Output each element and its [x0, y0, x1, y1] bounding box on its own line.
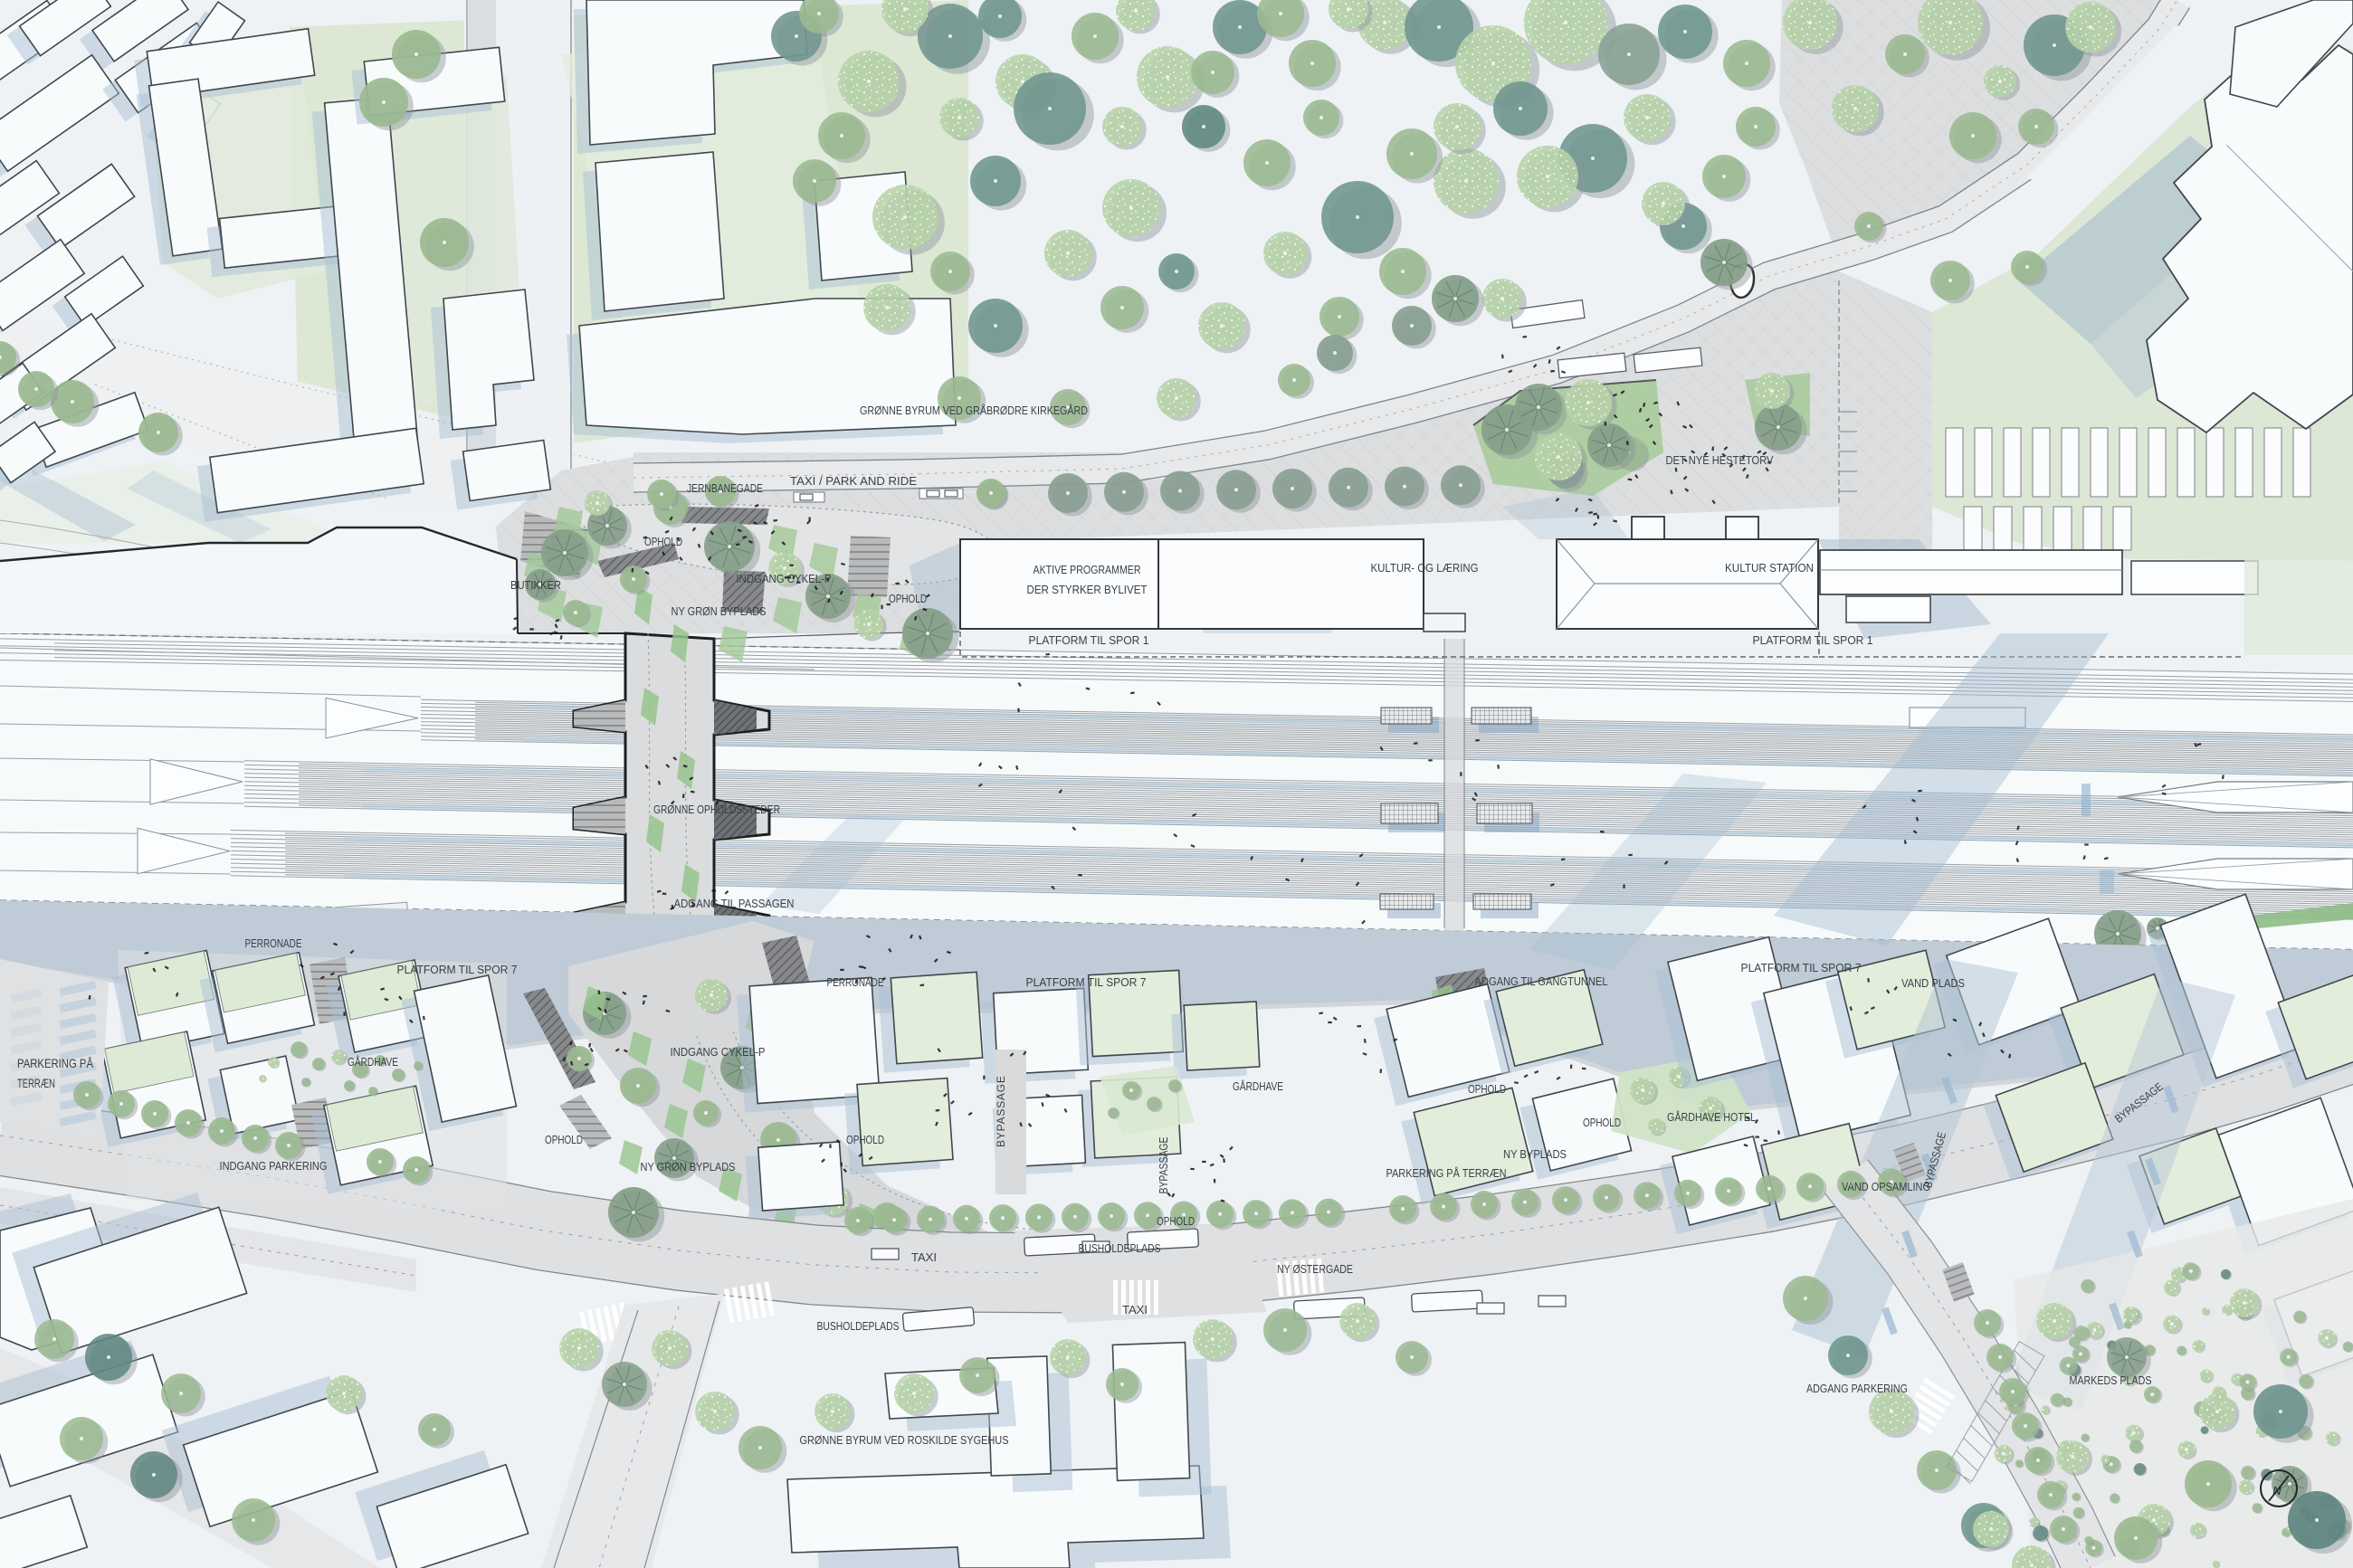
svg-text:PLATFORM TIL SPOR 7: PLATFORM TIL SPOR 7 — [397, 964, 518, 976]
svg-text:GÅRDHAVE: GÅRDHAVE — [348, 1055, 398, 1069]
svg-text:BYPASSAGE: BYPASSAGE — [995, 1075, 1007, 1147]
svg-text:ADGANG TIL GANGTUNNEL: ADGANG TIL GANGTUNNEL — [1475, 975, 1608, 988]
svg-text:TAXI / PARK AND RIDE: TAXI / PARK AND RIDE — [790, 475, 917, 488]
svg-text:ADGANG TIL PASSAGEN: ADGANG TIL PASSAGEN — [674, 898, 795, 910]
svg-text:PERRONADE: PERRONADE — [245, 937, 302, 950]
svg-text:BUSHOLDEPLADS: BUSHOLDEPLADS — [817, 1320, 900, 1333]
svg-text:TAXI: TAXI — [911, 1251, 937, 1264]
svg-text:TERRÆN: TERRÆN — [17, 1076, 55, 1090]
svg-text:NY GRØN BYPLADS: NY GRØN BYPLADS — [672, 605, 767, 618]
svg-text:NY BYPLADS: NY BYPLADS — [1503, 1148, 1567, 1161]
svg-text:GÅRDHAVE HOTEL: GÅRDHAVE HOTEL — [1667, 1110, 1756, 1124]
svg-text:BUTIKKER: BUTIKKER — [510, 579, 561, 592]
svg-text:GRØNNE OPHOLDSSTEDER: GRØNNE OPHOLDSSTEDER — [653, 803, 780, 816]
svg-text:N: N — [2272, 1484, 2282, 1497]
svg-text:PLATFORM TIL SPOR 1: PLATFORM TIL SPOR 1 — [1029, 634, 1149, 647]
svg-text:TAXI: TAXI — [1122, 1304, 1148, 1316]
svg-text:OPHOLD: OPHOLD — [1583, 1117, 1621, 1129]
svg-text:JERNBANEGADE: JERNBANEGADE — [687, 482, 763, 495]
svg-text:BYPASSAGE: BYPASSAGE — [1157, 1137, 1170, 1194]
svg-text:VAND OPSAMLING: VAND OPSAMLING — [1842, 1181, 1930, 1193]
svg-text:KULTUR STATION: KULTUR STATION — [1725, 562, 1814, 575]
svg-text:PERRONADE: PERRONADE — [827, 976, 884, 989]
svg-text:GÅRDHAVE: GÅRDHAVE — [1233, 1079, 1283, 1093]
svg-text:PLATFORM TIL SPOR 7: PLATFORM TIL SPOR 7 — [1026, 976, 1147, 989]
svg-text:OPHOLD: OPHOLD — [545, 1134, 583, 1146]
svg-text:GRØNNE BYRUM VED ROSKILDE SYGE: GRØNNE BYRUM VED ROSKILDE SYGEHUS — [800, 1434, 1009, 1447]
svg-text:OPHOLD: OPHOLD — [644, 536, 682, 548]
svg-text:OPHOLD: OPHOLD — [1157, 1215, 1195, 1228]
svg-text:INDGANG CYKEL-P: INDGANG CYKEL-P — [737, 573, 832, 585]
svg-text:DER STYRKER BYLIVET: DER STYRKER BYLIVET — [1027, 584, 1148, 596]
svg-text:PARKERING PÅ: PARKERING PÅ — [17, 1056, 94, 1070]
svg-text:INDGANG CYKEL-P: INDGANG CYKEL-P — [671, 1046, 766, 1059]
svg-text:NY GRØN BYPLADS: NY GRØN BYPLADS — [641, 1161, 736, 1174]
svg-text:OPHOLD: OPHOLD — [889, 593, 927, 605]
svg-text:BUSHOLDEPLADS: BUSHOLDEPLADS — [1079, 1242, 1161, 1255]
svg-text:PLATFORM TIL SPOR 1: PLATFORM TIL SPOR 1 — [1753, 634, 1873, 647]
svg-text:NY ØSTERGADE: NY ØSTERGADE — [1277, 1263, 1353, 1276]
svg-text:PARKERING PÅ TERRÆN: PARKERING PÅ TERRÆN — [1386, 1166, 1507, 1180]
svg-text:MARKEDS PLADS: MARKEDS PLADS — [2070, 1374, 2152, 1387]
svg-text:INDGANG PARKERING: INDGANG PARKERING — [220, 1160, 328, 1173]
svg-text:VAND PLADS: VAND PLADS — [1901, 977, 1965, 990]
svg-text:ADGANG PARKERING: ADGANG PARKERING — [1806, 1383, 1908, 1395]
svg-text:OPHOLD: OPHOLD — [1468, 1083, 1506, 1096]
svg-text:GRØNNE BYRUM VED GRÅBRØDRE KIR: GRØNNE BYRUM VED GRÅBRØDRE KIRKEGÅRD — [860, 404, 1088, 417]
svg-text:AKTIVE PROGRAMMER: AKTIVE PROGRAMMER — [1034, 564, 1141, 576]
svg-text:PLATFORM TIL SPOR 7: PLATFORM TIL SPOR 7 — [1741, 962, 1862, 974]
svg-text:DET NYE HESTETORV: DET NYE HESTETORV — [1666, 454, 1775, 467]
svg-text:OPHOLD: OPHOLD — [846, 1134, 884, 1146]
svg-text:KULTUR- OG LÆRING: KULTUR- OG LÆRING — [1371, 562, 1479, 575]
